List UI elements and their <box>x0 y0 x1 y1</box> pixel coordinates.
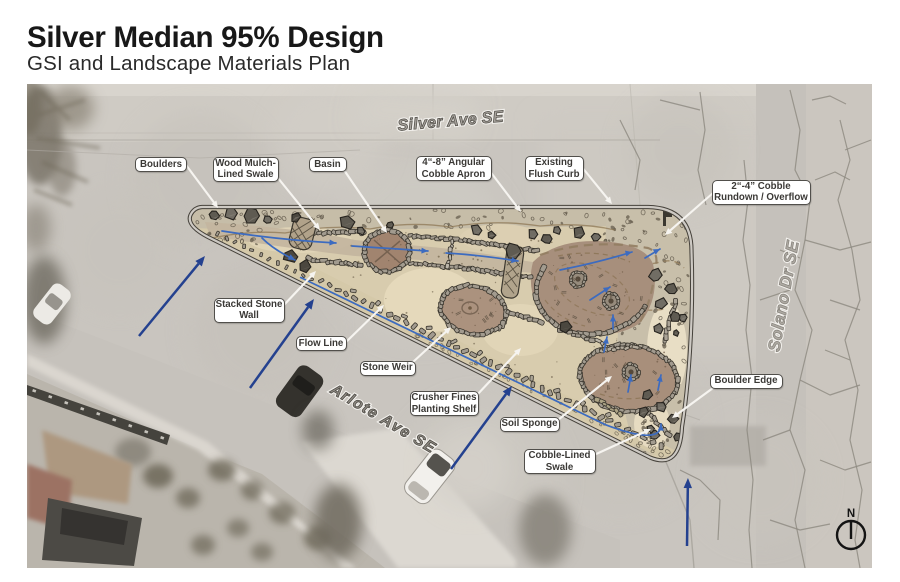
svg-text:N: N <box>847 508 855 520</box>
